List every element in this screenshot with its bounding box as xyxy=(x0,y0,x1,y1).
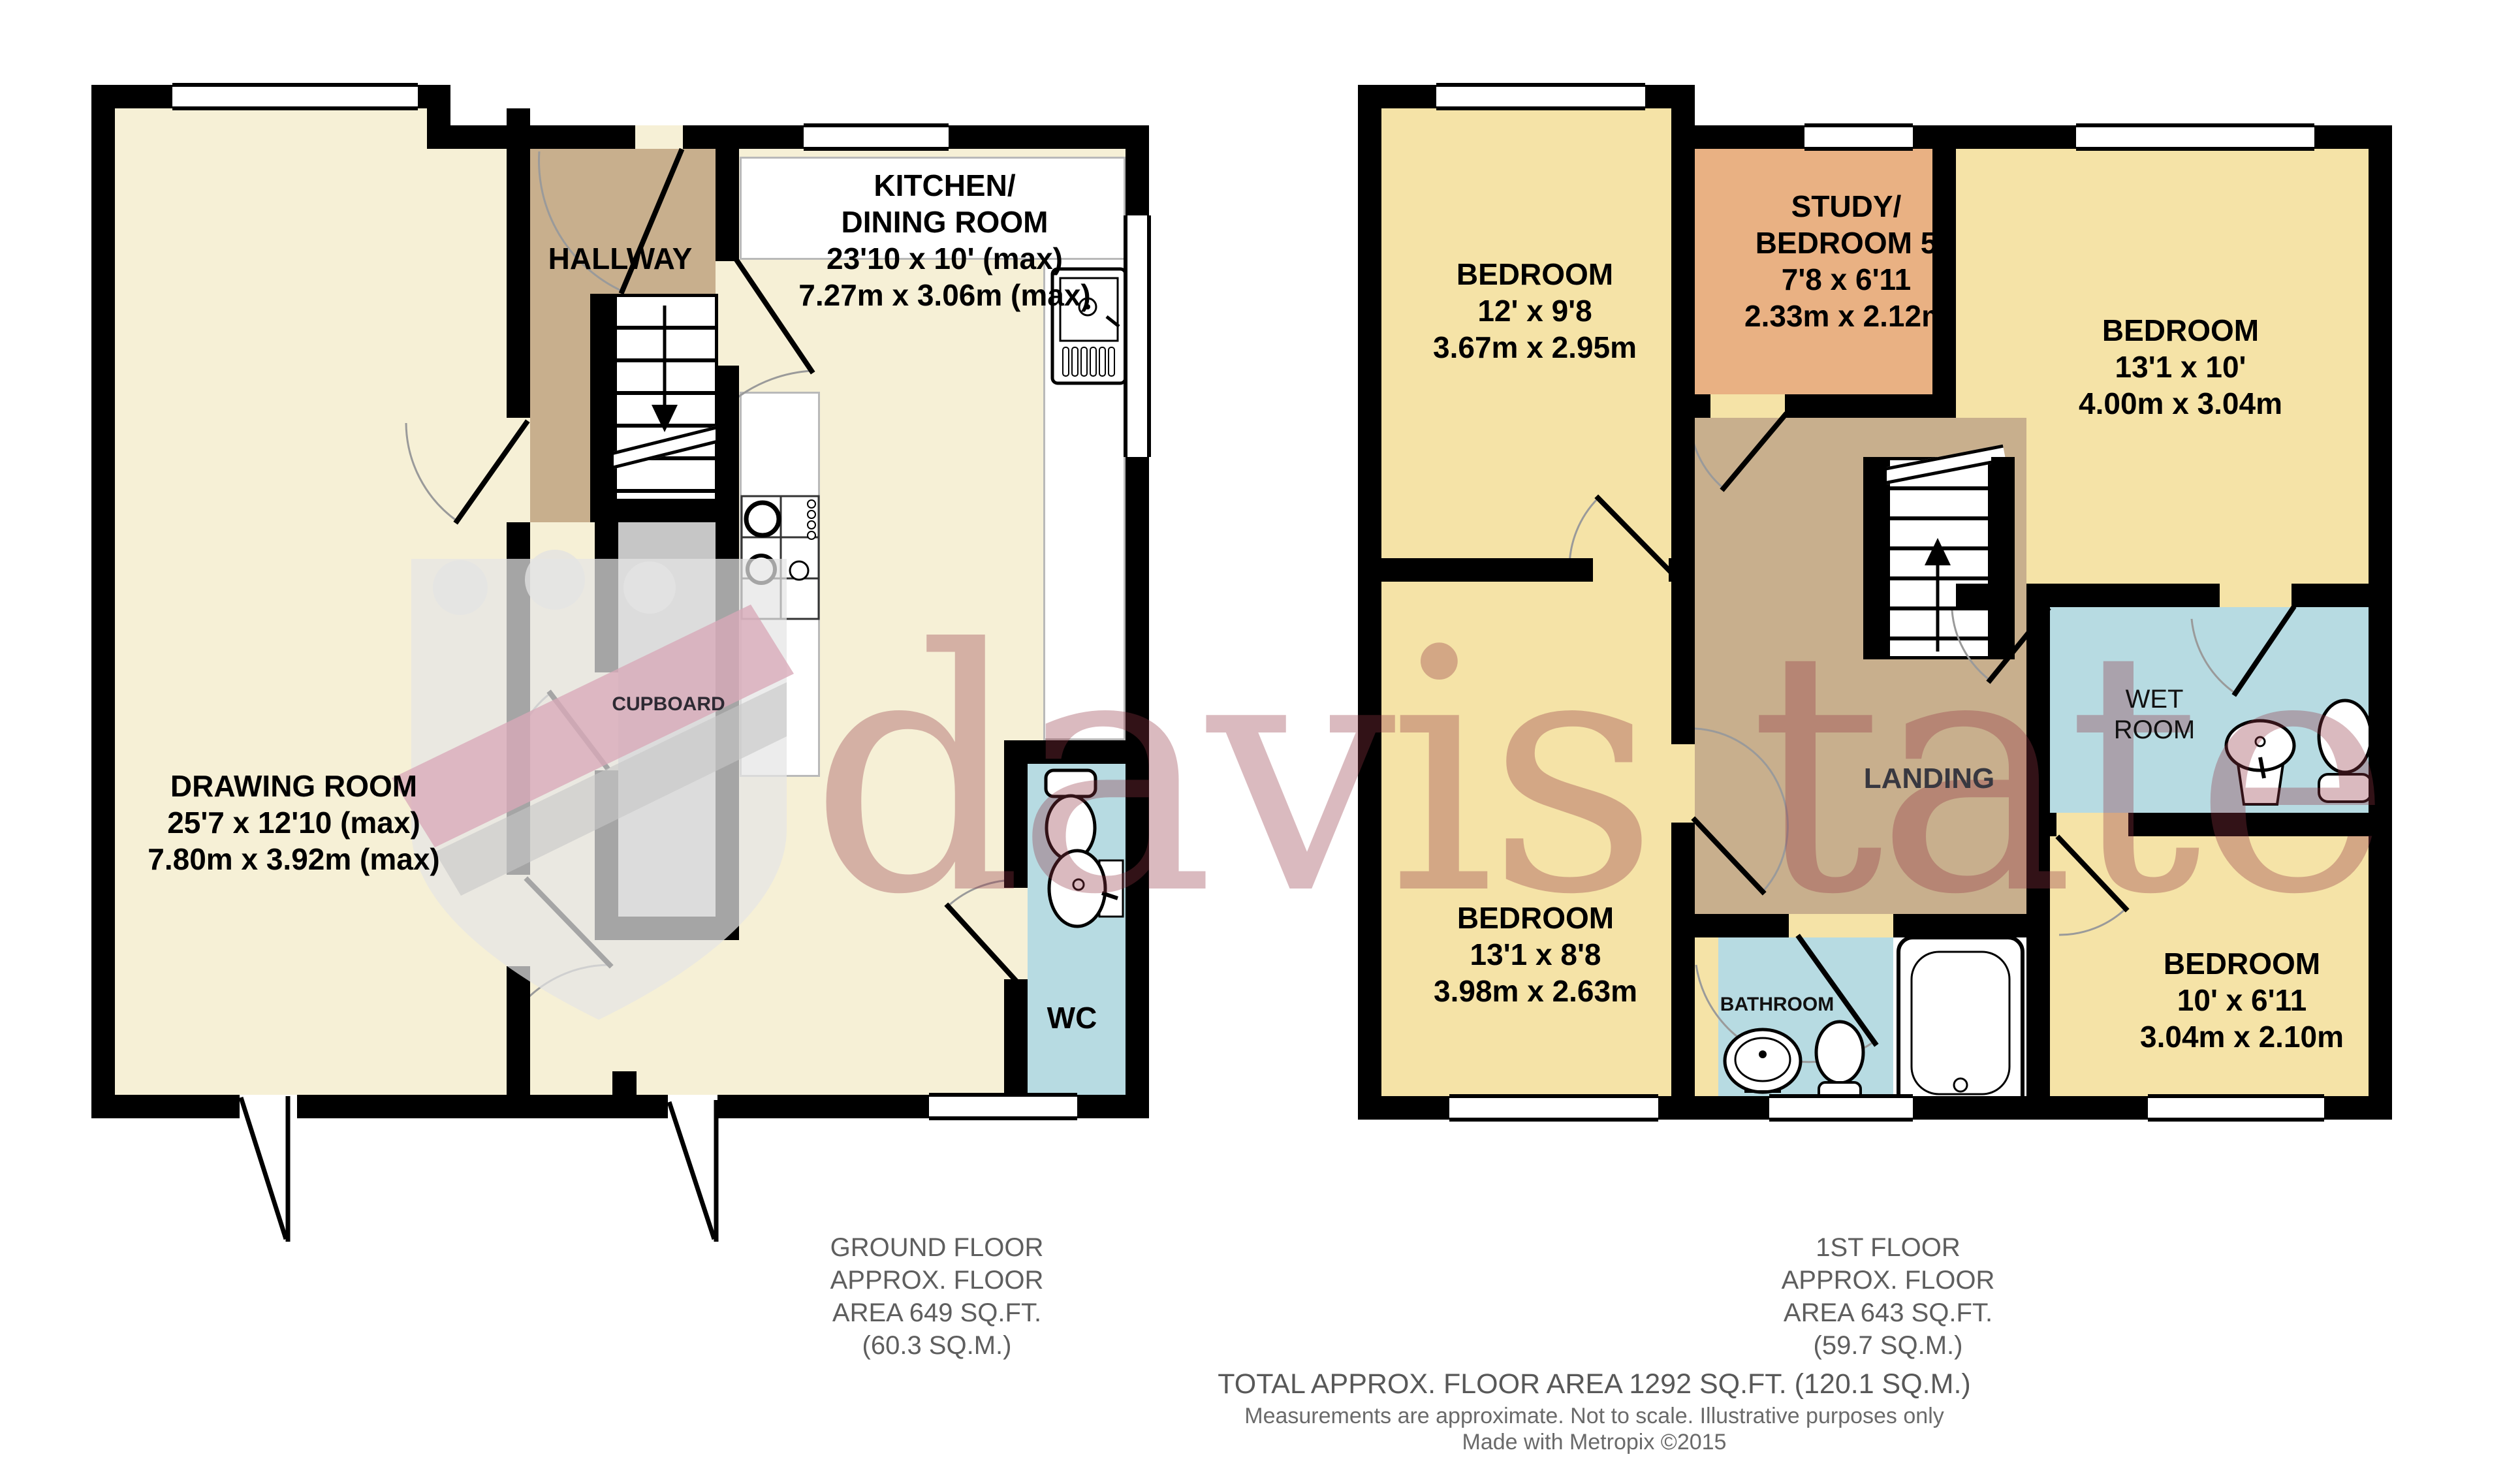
wall xyxy=(1893,914,2026,937)
wall xyxy=(2128,813,2392,836)
wall xyxy=(507,522,530,875)
window xyxy=(1436,83,1645,110)
stairs-first xyxy=(1887,457,1991,659)
room-wc xyxy=(1028,764,1126,1095)
wall xyxy=(1004,740,1149,764)
ground-floor-area-note: GROUND FLOOR APPROX. FLOOR AREA 649 SQ.F… xyxy=(830,1231,1044,1362)
window xyxy=(929,1093,1077,1120)
label-cupboard: CUPBOARD xyxy=(612,693,725,716)
wall xyxy=(507,966,530,1095)
room-wet-room xyxy=(2050,607,2369,813)
wall xyxy=(2369,125,2392,1120)
label-bedroom3: BEDROOM 13'1 x 8'8 3.98m x 2.63m xyxy=(1434,900,1637,1009)
label-landing: LANDING xyxy=(1864,763,1994,795)
label-study: STUDY/ BEDROOM 5 7'8 x 6'11 2.33m x 2.12… xyxy=(1744,188,1948,334)
kitchen-worktop-right xyxy=(1043,258,1126,740)
window xyxy=(1769,1094,1913,1122)
first-floor-area-note: 1ST FLOOR APPROX. FLOOR AREA 643 SQ.FT. … xyxy=(1782,1231,1995,1362)
label-bedroom1: BEDROOM 12' x 9'8 3.67m x 2.95m xyxy=(1433,256,1637,366)
wall xyxy=(91,1095,240,1118)
window xyxy=(1804,123,1913,151)
wall xyxy=(1956,584,1989,607)
wall xyxy=(1991,457,2015,659)
window xyxy=(1124,215,1151,457)
wall xyxy=(1695,914,1789,937)
floorplan-sheet: davis tate DRAWING ROOM 25'7 x 12'10 (ma… xyxy=(0,0,2520,1463)
wall xyxy=(2026,813,2056,836)
wall xyxy=(1863,457,1887,659)
wall xyxy=(1785,394,1956,418)
label-wet-room: WET ROOM xyxy=(2114,684,2195,746)
window xyxy=(804,123,949,151)
credit: Made with Metropix ©2015 xyxy=(1462,1430,1727,1455)
window xyxy=(2076,123,2314,151)
room-cupboard xyxy=(618,522,716,917)
kitchen-worktop-left xyxy=(740,392,820,777)
wall xyxy=(1671,108,1695,744)
window xyxy=(172,83,418,110)
wall xyxy=(1358,558,1593,582)
wall xyxy=(590,294,614,522)
wall xyxy=(2292,584,2392,607)
label-hallway: HALLWAY xyxy=(548,240,693,277)
label-bedroom4: BEDROOM 10' x 6'11 3.04m x 2.10m xyxy=(2140,945,2344,1055)
wall xyxy=(1669,558,1695,582)
bath-alcove xyxy=(1893,937,2026,1096)
window xyxy=(2148,1094,2324,1122)
label-wc: WC xyxy=(1047,1000,1097,1035)
wall xyxy=(2026,836,2050,1096)
wall xyxy=(507,108,530,418)
exterior-patch xyxy=(450,85,1149,125)
label-bedroom2: BEDROOM 13'1 x 10' 4.00m x 3.04m xyxy=(2079,312,2282,422)
label-kitchen: KITCHEN/ DINING ROOM 23'10 x 10' (max) 7… xyxy=(798,167,1091,313)
wall xyxy=(716,366,739,940)
wall xyxy=(91,85,115,1118)
window xyxy=(1449,1094,1658,1122)
wall xyxy=(1004,764,1028,888)
wall xyxy=(1671,823,1695,1096)
wall xyxy=(595,917,739,940)
wall xyxy=(612,1071,637,1095)
disclaimer: Measurements are approximate. Not to sca… xyxy=(1244,1404,1944,1429)
exterior-patch-2 xyxy=(1695,85,2392,125)
wall xyxy=(427,125,635,149)
stairs-ground xyxy=(614,294,718,519)
label-bathroom: BATHROOM xyxy=(1720,994,1834,1016)
wall xyxy=(595,499,618,672)
wall xyxy=(297,1095,668,1118)
wall xyxy=(1695,394,1710,418)
label-drawing-room: DRAWING ROOM 25'7 x 12'10 (max) 7.80m x … xyxy=(148,768,440,877)
wall xyxy=(2026,584,2050,813)
total-floor-area: TOTAL APPROX. FLOOR AREA 1292 SQ.FT. (12… xyxy=(1218,1368,1970,1400)
wall xyxy=(1358,85,1381,1120)
wall xyxy=(2026,584,2220,607)
wall xyxy=(595,770,618,940)
wall xyxy=(716,149,739,261)
room-bathroom xyxy=(1718,937,1893,1096)
